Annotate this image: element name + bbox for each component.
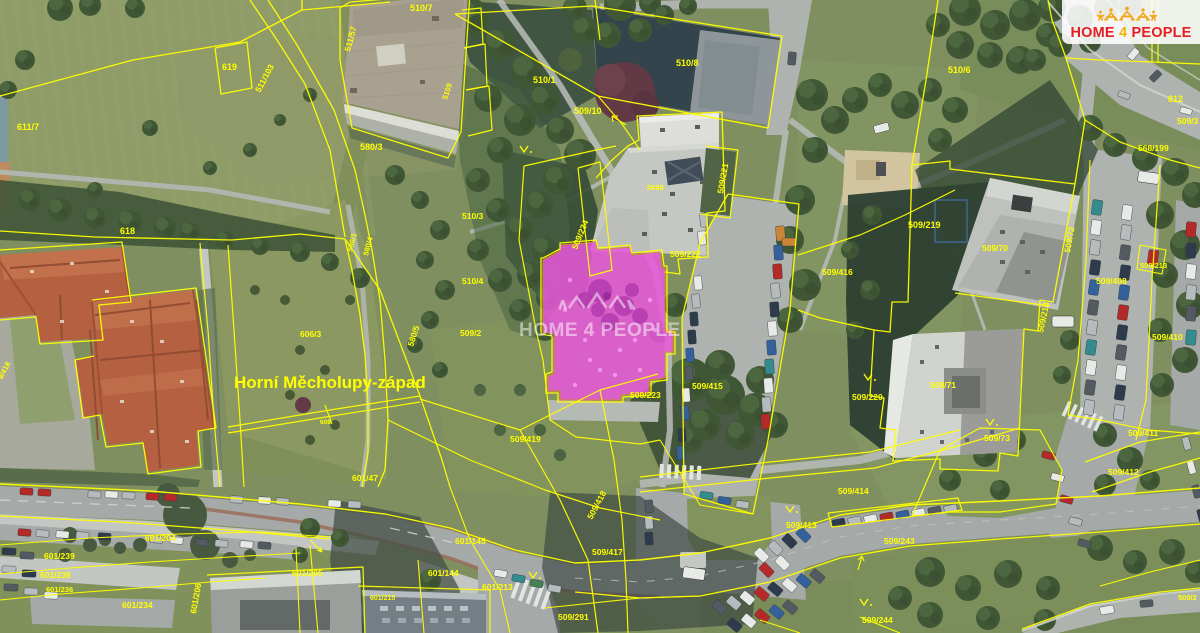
svg-text:509/2: 509/2 (460, 328, 482, 338)
svg-text:601/215: 601/215 (370, 595, 395, 602)
svg-text:509/244: 509/244 (862, 615, 893, 625)
svg-text:509/416: 509/416 (822, 267, 853, 277)
svg-text:568/199: 568/199 (1138, 143, 1169, 153)
svg-text:510/8: 510/8 (676, 58, 699, 68)
svg-text:510/1: 510/1 (533, 75, 556, 85)
svg-text:618: 618 (120, 226, 135, 236)
svg-text:HOME 4 PEOPLE: HOME 4 PEOPLE (519, 320, 681, 341)
svg-text:509/3: 509/3 (1177, 116, 1199, 126)
svg-text:509/73: 509/73 (984, 433, 1010, 443)
svg-text:Horní Měcholupy-západ: Horní Měcholupy-západ (234, 373, 426, 392)
svg-text:601/47: 601/47 (352, 473, 378, 483)
svg-text:601/213: 601/213 (482, 582, 513, 592)
svg-text:608: 608 (320, 419, 331, 426)
svg-text:509/410: 509/410 (1152, 332, 1183, 342)
svg-text:509/222: 509/222 (670, 249, 701, 259)
svg-text:509/411: 509/411 (1128, 428, 1159, 438)
svg-text:509/414: 509/414 (838, 486, 869, 496)
svg-text:509/412: 509/412 (1108, 467, 1139, 477)
svg-text:601/238: 601/238 (40, 570, 71, 580)
svg-text:509/220: 509/220 (852, 392, 883, 402)
svg-text:510/4: 510/4 (462, 276, 484, 286)
svg-text:509/70: 509/70 (982, 243, 1008, 253)
svg-text:510/6: 510/6 (948, 65, 971, 75)
svg-text:5698: 5698 (647, 183, 664, 192)
svg-text:601/205: 601/205 (292, 568, 323, 578)
svg-text:509/415: 509/415 (692, 381, 723, 391)
svg-text:509/71: 509/71 (930, 380, 956, 390)
svg-text:509/2: 509/2 (1178, 593, 1197, 602)
svg-text:580/3: 580/3 (360, 142, 383, 152)
svg-text:601/144: 601/144 (428, 568, 459, 578)
svg-text:509/291: 509/291 (558, 612, 589, 622)
svg-text:601/236: 601/236 (46, 585, 73, 594)
svg-text:509/10: 509/10 (574, 106, 602, 116)
svg-text:509/219: 509/219 (908, 220, 941, 230)
svg-text:509/408: 509/408 (1096, 276, 1127, 286)
svg-text:HOME 4 PEOPLE: HOME 4 PEOPLE (1070, 25, 1191, 41)
svg-text:509/413: 509/413 (786, 520, 817, 530)
svg-text:601/145: 601/145 (455, 536, 486, 546)
svg-text:606/3: 606/3 (300, 329, 322, 339)
svg-text:509/213: 509/213 (1140, 261, 1167, 270)
svg-text:510/7: 510/7 (410, 3, 433, 13)
svg-text:601/234: 601/234 (122, 600, 153, 610)
svg-text:601/239: 601/239 (44, 551, 75, 561)
svg-text:619: 619 (222, 62, 237, 72)
svg-text:509/223: 509/223 (630, 390, 661, 400)
svg-text:601/204: 601/204 (145, 533, 176, 543)
svg-text:812: 812 (1168, 94, 1183, 104)
svg-text:611/7: 611/7 (17, 122, 39, 132)
svg-text:509/417: 509/417 (592, 547, 623, 557)
svg-text:509/419: 509/419 (510, 434, 541, 444)
svg-text:510/3: 510/3 (462, 211, 484, 221)
svg-text:509/243: 509/243 (884, 536, 915, 546)
